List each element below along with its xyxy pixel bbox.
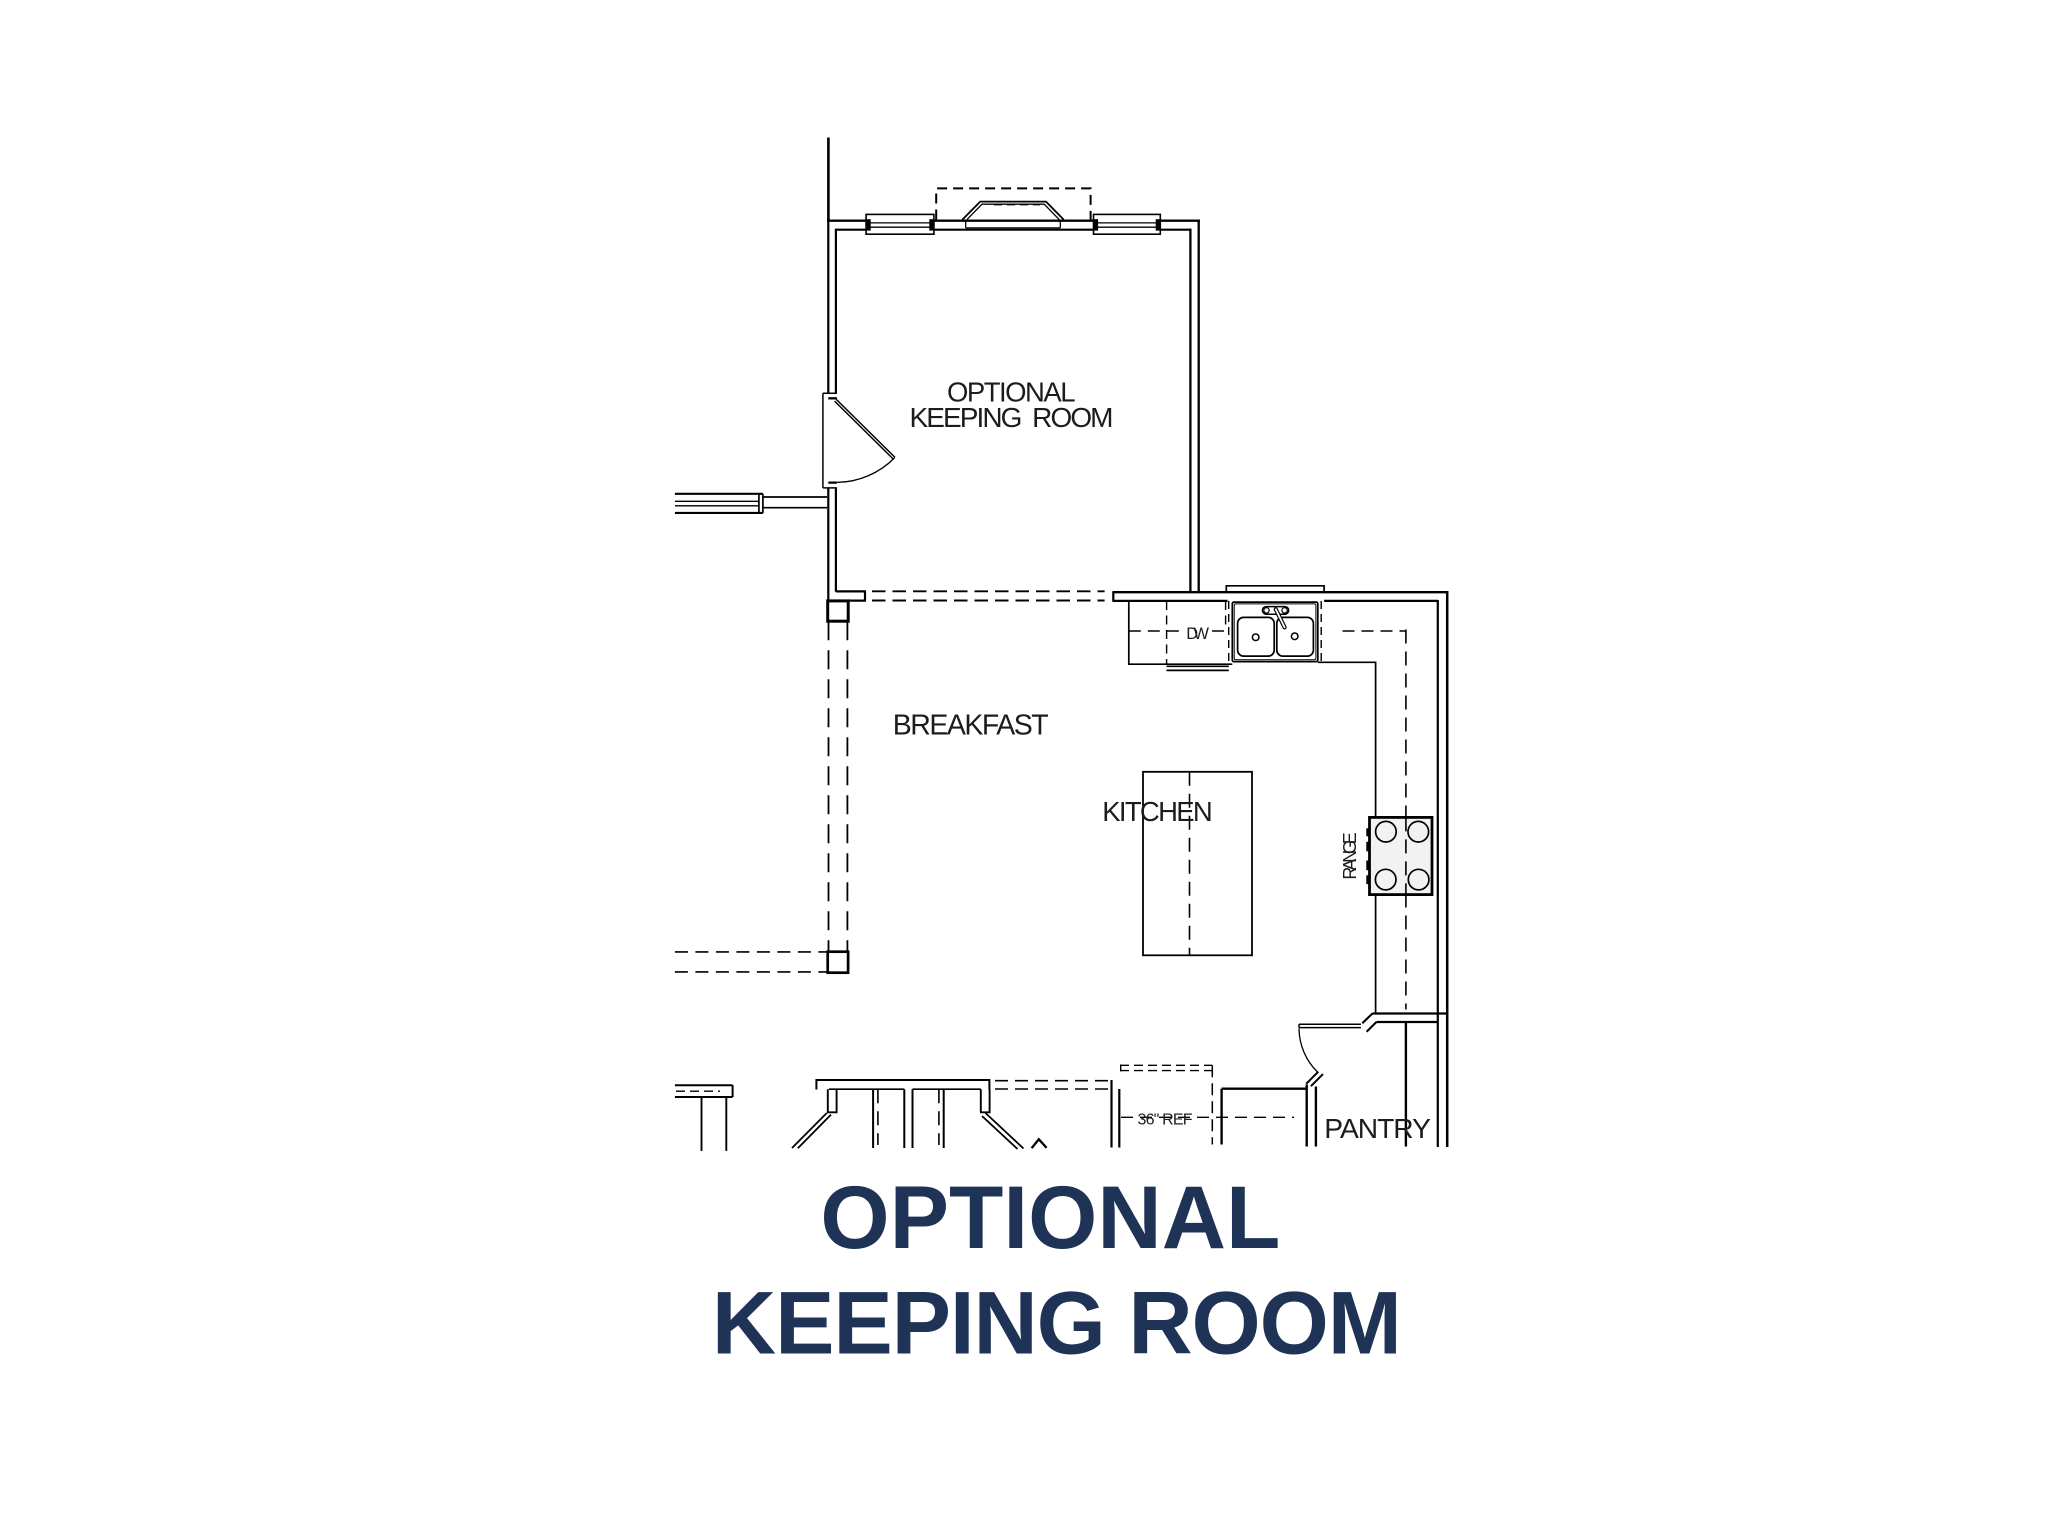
svg-text:BREAKFAST: BREAKFAST [893, 709, 1049, 741]
svg-text:KITCHEN: KITCHEN [1102, 796, 1213, 827]
svg-text:RANGE: RANGE [1340, 832, 1360, 879]
svg-text:PANTRY: PANTRY [1324, 1112, 1431, 1144]
svg-text:KEEPING ROOM: KEEPING ROOM [910, 402, 1114, 433]
svg-text:KEEPING ROOM: KEEPING ROOM [712, 1273, 1402, 1373]
svg-text:OPTIONAL: OPTIONAL [820, 1167, 1280, 1267]
svg-text:DW: DW [1186, 625, 1209, 643]
svg-text:36" REF: 36" REF [1138, 1112, 1193, 1129]
